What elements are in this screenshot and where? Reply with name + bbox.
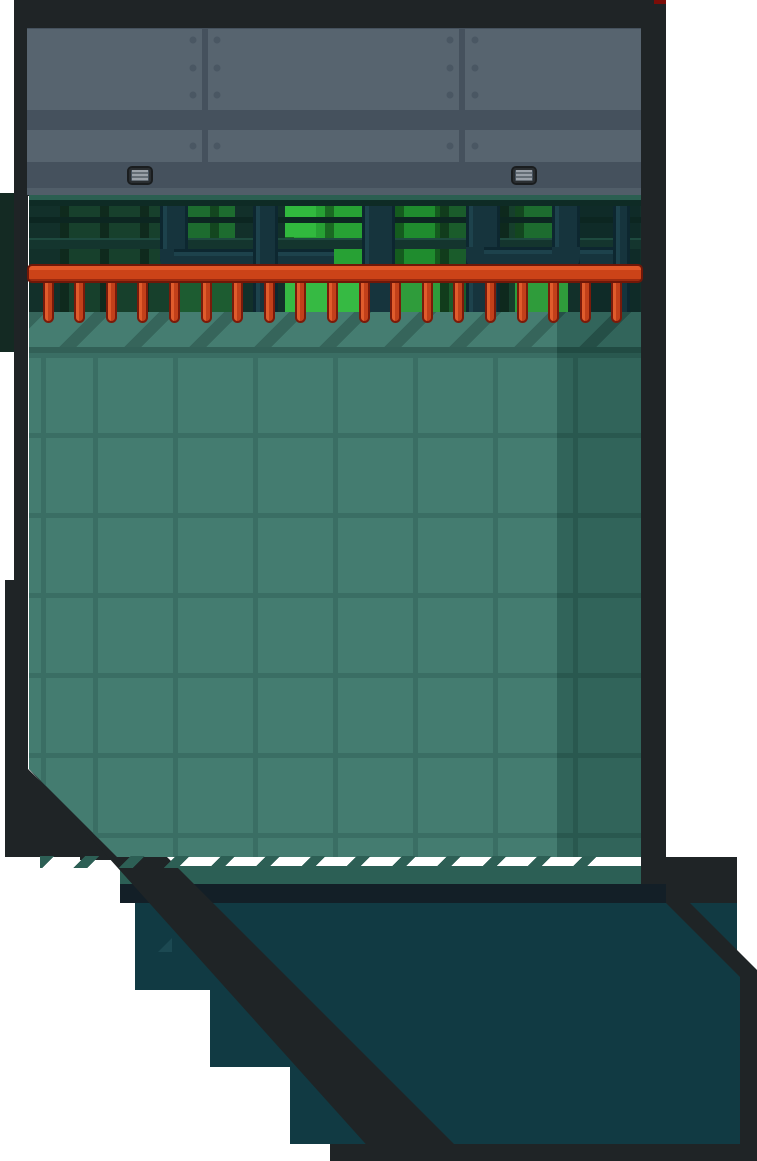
- spike-prong: [201, 281, 212, 323]
- spike-prong: [264, 281, 275, 323]
- hazard-hatch-bottom: [40, 856, 600, 868]
- left-duct: [0, 193, 14, 352]
- tile-wall: [29, 312, 641, 857]
- rivet: [214, 65, 221, 72]
- rivet: [447, 65, 454, 72]
- spike-prong: [327, 281, 338, 323]
- spike-prong: [169, 281, 180, 323]
- rivet: [472, 143, 479, 150]
- metal-wall: [27, 28, 641, 195]
- panel-seam: [202, 130, 208, 162]
- rivet: [190, 143, 197, 150]
- rivet: [190, 65, 197, 72]
- spike-prong: [517, 281, 528, 323]
- game-viewport[interactable]: [0, 0, 757, 1161]
- spike-prong: [390, 281, 401, 323]
- rivet: [472, 37, 479, 44]
- tile-highlight: [29, 312, 557, 857]
- mid-teal-band: [120, 866, 641, 884]
- spike-prong: [232, 281, 243, 323]
- spike-prong: [43, 281, 54, 323]
- vent-icon: [511, 166, 537, 185]
- wall-panel-row1: [27, 29, 641, 110]
- spike-prong: [580, 281, 591, 323]
- window-rail: [29, 217, 641, 223]
- spike-prong: [74, 281, 85, 323]
- panel-seam: [202, 29, 208, 110]
- vent-icon: [127, 166, 153, 185]
- spike-prong: [611, 281, 622, 323]
- rivet: [447, 92, 454, 99]
- frame-left-upper: [14, 196, 28, 580]
- rivet: [472, 65, 479, 72]
- spike-prong: [422, 281, 433, 323]
- spike-bar: [27, 264, 643, 283]
- spike-prong: [485, 281, 496, 323]
- rivet: [447, 37, 454, 44]
- tile-shadow: [557, 312, 641, 857]
- panel-seam: [459, 130, 465, 162]
- panel-seam: [459, 29, 465, 110]
- rivet: [190, 92, 197, 99]
- rivet: [214, 143, 221, 150]
- wall-panel-row2: [27, 130, 641, 162]
- rivet: [190, 37, 197, 44]
- rivet: [214, 37, 221, 44]
- spike-glow: [395, 283, 440, 312]
- spike-prong: [137, 281, 148, 323]
- spike-prong: [548, 281, 559, 323]
- spike-prong: [359, 281, 370, 323]
- frame-bottom-strip: [330, 1144, 740, 1161]
- red-sliver: [654, 0, 666, 4]
- frame-right-column-bottom: [740, 970, 757, 1161]
- spike-prong: [106, 281, 117, 323]
- rivet: [447, 143, 454, 150]
- rivet: [214, 92, 221, 99]
- wall-bottom-highlight: [27, 188, 641, 195]
- spike-prong: [295, 281, 306, 323]
- rivet: [472, 92, 479, 99]
- frame-right: [641, 196, 666, 903]
- spike-prong: [453, 281, 464, 323]
